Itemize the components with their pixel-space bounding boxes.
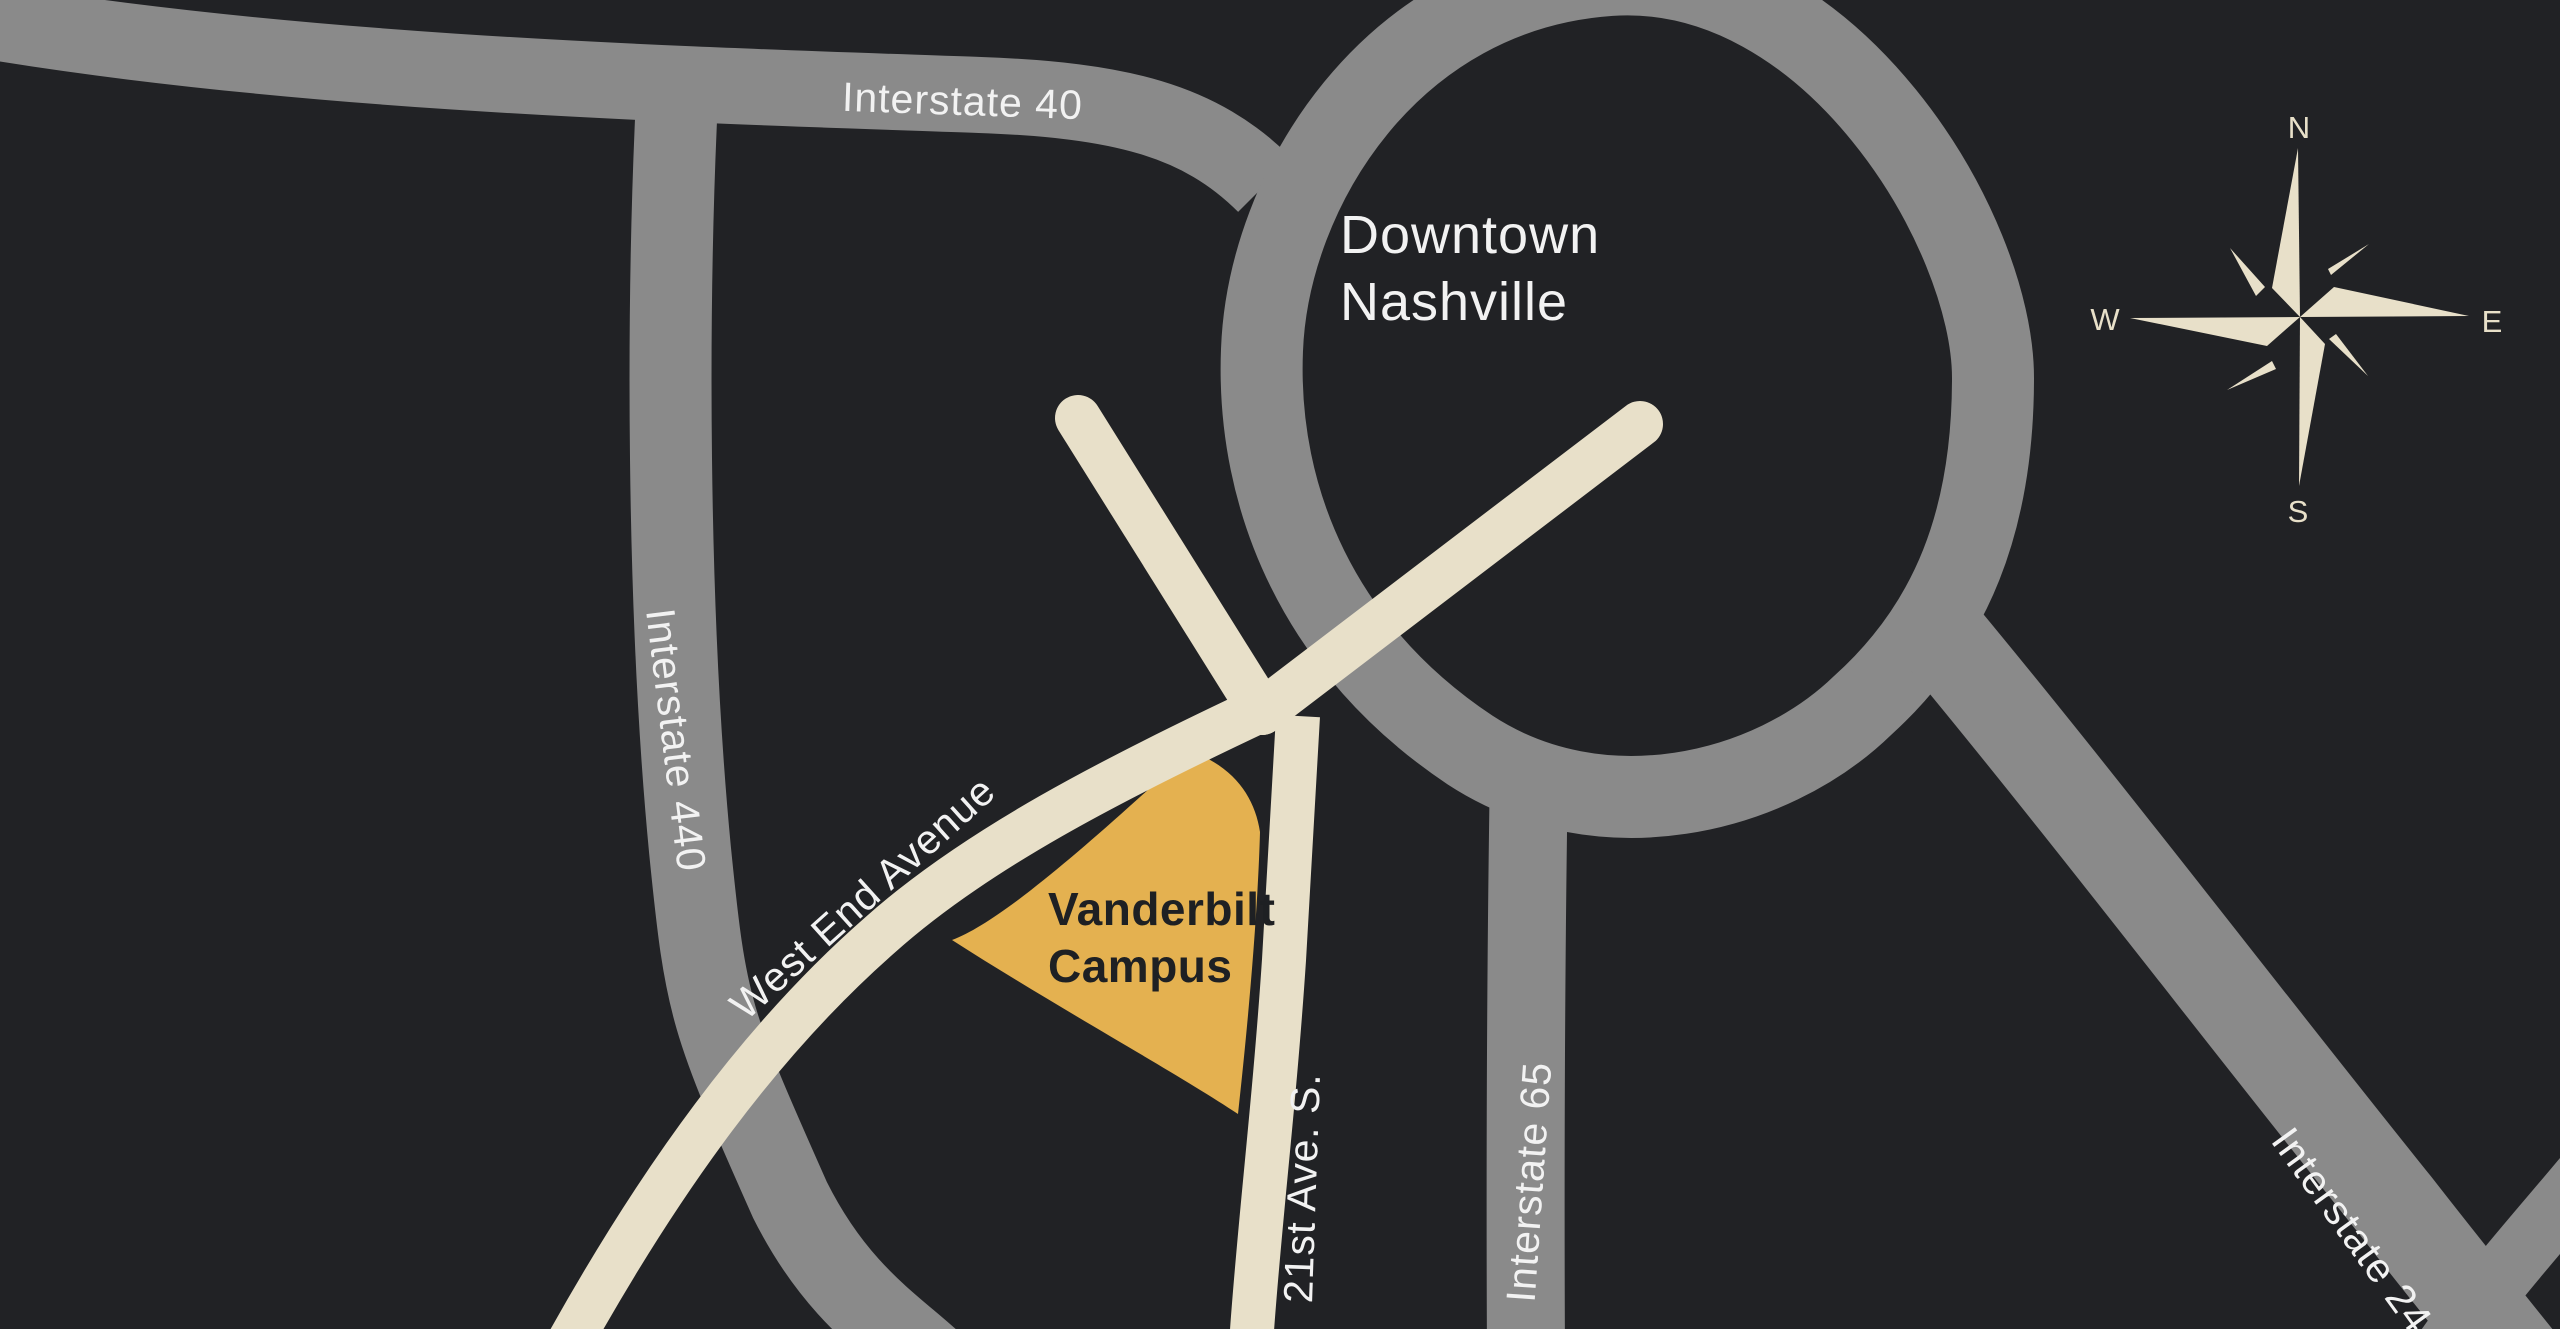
downtown-label-line1: Downtown (1340, 205, 1600, 265)
nashville-map: N W E S Interstate 40 Interstate 440 Int… (0, 0, 2560, 1329)
compass-east-label: E (2482, 304, 2503, 339)
twenty-first-ave-label: 21st Ave. S. (1275, 1072, 1329, 1304)
compass-west-label: W (2090, 302, 2120, 337)
interstate-40-label: Interstate 40 (841, 74, 1083, 128)
compass-south-label: S (2288, 494, 2309, 529)
downtown-label-line2: Nashville (1340, 272, 1568, 332)
campus-label-line1: Vanderbilt (1048, 883, 1275, 935)
campus-label-line2: Campus (1048, 940, 1232, 992)
compass-north-label: N (2288, 110, 2310, 145)
